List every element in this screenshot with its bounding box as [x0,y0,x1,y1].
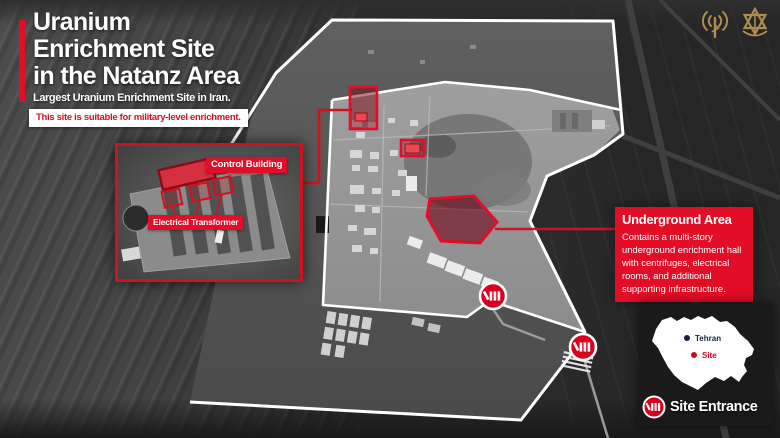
idf-emblem-icon [743,9,767,36]
title-accent-bar [19,20,25,102]
site-entrance-legend: Site Entrance [641,394,757,420]
site-entrance-label: Site Entrance [670,399,757,415]
electrical-transformer-label: Electrical Transformer [148,215,243,230]
emblems [698,4,778,46]
underground-body-line: supporting infrastructure. [622,282,746,295]
title-line-1: Uranium [33,9,239,36]
radio-tower-icon [703,12,727,37]
gate-icon [641,394,667,420]
underground-title: Underground Area [622,212,746,227]
tehran-label: Tehran [695,334,721,343]
title-line-2: Enrichment Site [33,36,239,63]
underground-body-line: underground enrichment hall [622,243,746,256]
site-label: Site [702,351,717,360]
natanz-infographic: Uranium Enrichment Site in the Natanz Ar… [0,0,780,438]
site-entrance-marker-south [570,334,596,360]
tehran-dot [684,335,690,341]
second-building-box [401,140,424,156]
military-enrichment-banner: This site is suitable for military-level… [29,109,248,127]
control-building-area-box [350,87,377,129]
subtitle: Largest Uranium Enrichment Site in Iran. [33,92,230,104]
underground-body-line: rooms, and additional [622,269,746,282]
site-entrance-marker-north [480,283,506,309]
underground-body-line: Contains a multi-story [622,230,746,243]
underground-body-line: with centrifuges, electrical [622,256,746,269]
iran-locator-panel: Tehran Site Site Entrance [639,303,773,426]
site-dot [691,352,697,358]
title-line-3: in the Natanz Area [33,63,239,90]
page-title: Uranium Enrichment Site in the Natanz Ar… [33,9,239,90]
control-building-label: Control Building [206,157,287,173]
underground-area-callout: Underground Area Contains a multi-story … [615,207,753,302]
substation-inset: Control Building Electrical Transformer [115,143,303,282]
